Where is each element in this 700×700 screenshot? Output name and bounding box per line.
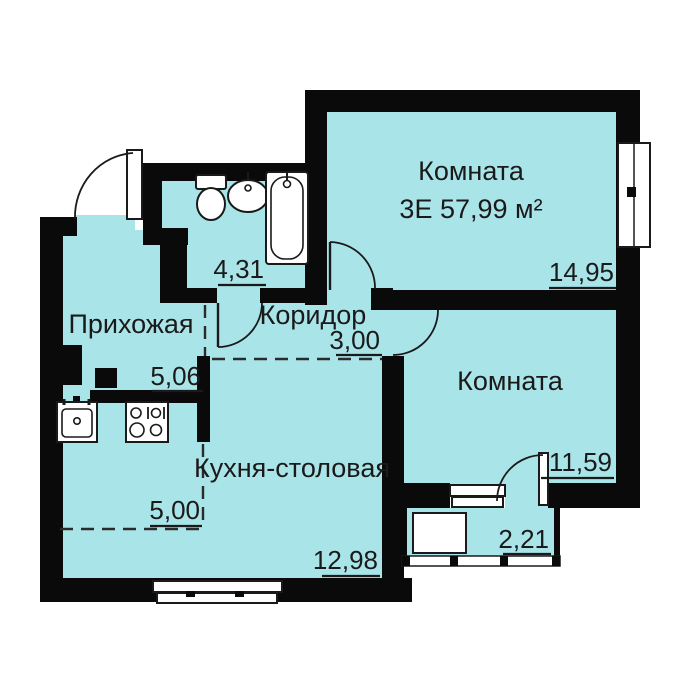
floorplan-drawing: Комната 3Е 57,99 м² 14,95 Комната 11,59 … (0, 0, 700, 700)
corridor-area: 3,00 (329, 325, 380, 355)
bathroom-area: 4,31 (213, 254, 264, 284)
window-kitchen-tick (235, 591, 244, 597)
floorplan-page: Комната 3Е 57,99 м² 14,95 Комната 11,59 … (0, 0, 700, 700)
kitchen-area: 12,98 (313, 545, 378, 575)
window-kitchen-inner (157, 593, 277, 603)
room-top-area: 14,95 (549, 257, 614, 287)
kitchen-niche-area: 5,00 (149, 495, 200, 525)
wall-segment (548, 483, 638, 508)
entrance-door-leaf (127, 150, 142, 219)
room-right-name: Комната (457, 366, 564, 396)
entrance-door-arc (75, 153, 133, 219)
wall-segment (160, 288, 217, 303)
window-kitchen-tick (186, 591, 195, 597)
wall-segment (40, 345, 82, 365)
hallway-name: Прихожая (68, 309, 193, 339)
stove-icon (126, 402, 168, 442)
balcony-area: 2,21 (498, 524, 549, 554)
balcony-glazing-tick (402, 556, 410, 566)
balcony-glazing-tick (552, 556, 560, 566)
room-right-area: 11,59 (549, 447, 612, 477)
wall-segment (60, 365, 82, 385)
kitchen-name: Кухня-столовая (194, 453, 390, 483)
wall-segment (382, 483, 450, 508)
apartment-spec: 3Е 57,99 м² (399, 194, 542, 224)
balcony-wall-left (402, 508, 407, 561)
room-top-name: Комната (418, 156, 525, 186)
balcony-wall-right (554, 508, 560, 561)
window-room-top-tick (627, 187, 636, 197)
balcony-glazing-tick (500, 556, 508, 566)
toilet-icon (196, 175, 226, 220)
hallway-area: 5,06 (150, 361, 201, 391)
wall-segment (390, 290, 616, 310)
balcony-hatch-icon (413, 513, 466, 553)
balcony-glazing-tick (450, 556, 458, 566)
wall-segment (305, 90, 640, 112)
bathtub-icon (266, 172, 308, 264)
kitchen-sink-icon (57, 396, 97, 442)
wall-segment (160, 245, 187, 295)
wall-segment (95, 368, 117, 388)
balcony-glazing (402, 556, 560, 566)
wall-segment (143, 228, 188, 245)
window-kitchen-outer (153, 581, 282, 592)
wall-segment (371, 288, 393, 310)
window-room-right-inner (452, 497, 503, 507)
